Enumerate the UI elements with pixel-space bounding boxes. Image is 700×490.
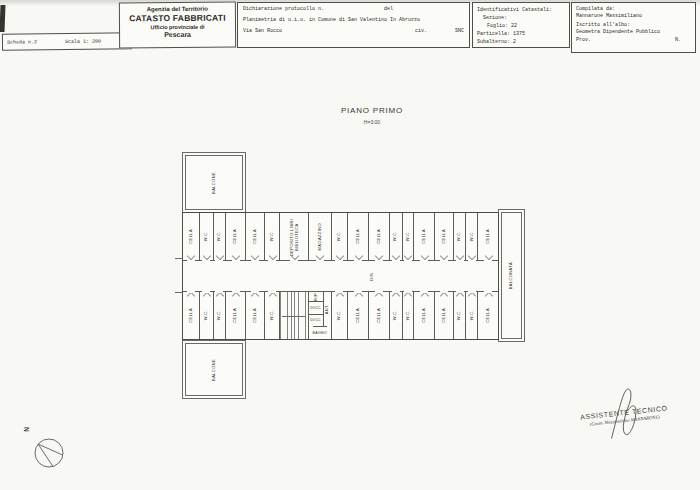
room-label: W.C. [270, 310, 275, 320]
room-cella: CELLA [368, 213, 389, 260]
cadastral-ids-title: Identificativi Catastali: [477, 6, 565, 14]
room-wc: W.C. [199, 213, 213, 260]
room-label: CELLA [486, 308, 491, 323]
register-value: Geometra Dipendente Pubblico [576, 29, 691, 36]
floor-title: PIANO PRIMO [322, 106, 422, 115]
room-wc: W.C. [402, 213, 414, 260]
foglio-field: Foglio: 22 [477, 22, 565, 30]
planimetria-line: Planimetria di u.i.u. in Comune di San V… [243, 18, 420, 23]
corridor-label: DIS. [370, 271, 375, 280]
room-deposito-libri: DEPOSITO LIBRI BIBLIOTECA [279, 213, 308, 260]
room-cella: CELLA [413, 292, 434, 339]
room-label: W.C. [470, 310, 475, 320]
room-wc: W.C. [331, 292, 348, 339]
room-label: W.C. [457, 231, 462, 241]
room-label: W.C. [270, 231, 275, 241]
room-label: DEPOSITO LIBRI BIBLIOTECA [290, 216, 299, 258]
room-label: CELLA [486, 229, 491, 244]
room-wc: W.C. [389, 292, 402, 339]
room-cella: CELLA [245, 292, 264, 339]
room-cella: CELLA [183, 292, 199, 339]
room-label: W.C. [204, 231, 209, 241]
room-label: W.C. [337, 310, 342, 320]
room-label-rip: RIP. [314, 292, 319, 301]
room-wc: W.C. [453, 213, 466, 260]
scan-corner-mark [0, 5, 5, 32]
balcony-bottom-left: BALCONE [182, 340, 246, 399]
cadastral-ids-box: Identificativi Catastali: Sezione: Fogli… [472, 2, 570, 48]
room-label: W.C. [393, 231, 398, 241]
subalterno-field: Subalterno: 2 [477, 38, 565, 46]
north-letter: N [23, 427, 30, 432]
protocol-label: Dichiarazione protocollo n. [243, 7, 324, 12]
room-label: BALCONE [212, 172, 217, 194]
civic-value: SNC [455, 29, 464, 34]
room-label: W.C. [217, 231, 222, 241]
office-label: Ufficio provinciale di [120, 24, 235, 31]
room-cella: CELLA [368, 292, 389, 339]
room-cella: CELLA [183, 213, 199, 260]
room-label: CELLA [442, 229, 447, 244]
scheda-number: Scheda n.2 [7, 39, 37, 45]
scanned-cadastral-sheet: Scheda n.2 Scala 1: 200 Agenzia del Terr… [0, 0, 700, 490]
room-label: BALCONE [212, 359, 217, 381]
room-cella: CELLA [477, 292, 498, 339]
room-cella: CELLA [347, 213, 368, 260]
catasto-title: CATASTO FABBRICATI [120, 13, 235, 24]
room-label: W.C. [470, 231, 475, 241]
room-label-docce: DOCC. [309, 301, 323, 313]
building-outline: CELLA W.C. W.C. CELLA CELLA W.C. DEPOSIT… [182, 212, 499, 340]
room-wc: W.C. [264, 213, 280, 260]
room-cella: CELLA [225, 213, 245, 260]
scheda-box: Scheda n.2 Scala 1: 200 [2, 32, 132, 50]
declaration-box: Dichiarazione protocollo n. del Planimet… [237, 2, 470, 48]
room-label: MAGAZZINO [318, 223, 323, 250]
room-label-bagno: BAGNO [313, 326, 327, 339]
room-label: CELLA [233, 229, 238, 244]
civic-label: civ. [415, 29, 427, 34]
staircase [279, 292, 308, 339]
room-wc: W.C. [465, 292, 477, 339]
corridor: DIS. [183, 261, 498, 291]
room-label: CELLA [442, 308, 447, 323]
agency-name: Agenzia del Territorio [120, 6, 235, 13]
room-cella: CELLA [434, 292, 453, 339]
compiler-box: Compilata da: Mannarone Massimiliano Isc… [571, 2, 696, 53]
room-wc: W.C. [213, 213, 226, 260]
lower-room-band: CELLA W.C. W.C. CELLA CELLA W.C. RIP. DO… [183, 291, 498, 339]
room-wc: W.C. [465, 213, 477, 260]
room-label-ant: ANT. [325, 304, 330, 314]
prov-label: Prov. [576, 37, 591, 44]
north-compass-icon: N [22, 424, 68, 472]
room-wc: W.C. [264, 292, 280, 339]
room-label: CELLA [233, 308, 238, 323]
room-wc: W.C. [331, 213, 348, 260]
room-label: CELLA [356, 229, 361, 244]
room-label: W.C. [337, 231, 342, 241]
room-cella: CELLA [245, 213, 264, 260]
room-cella: CELLA [477, 213, 498, 260]
room-label: CELLA [422, 308, 427, 323]
services-block: RIP. DOCC. DOCC. ANT. BAGNO [308, 292, 331, 339]
room-label: CELLA [189, 308, 194, 323]
particella-field: Particella: 1375 [477, 30, 565, 38]
room-label: CELLA [253, 308, 258, 323]
room-label: CELLA [377, 308, 382, 323]
room-label: W.C. [217, 310, 222, 320]
agency-logo-box: Agenzia del Territorio CATASTO FABBRICAT… [119, 2, 236, 49]
corridor-tick-left-bottom [175, 292, 182, 293]
room-cella: CELLA [434, 213, 453, 260]
sezione-field: Sezione: [477, 14, 565, 22]
signature-scribble-icon [594, 385, 651, 444]
floor-plan: BALCONE BALCONE BALCONATA CELLA W.C. W.C… [182, 152, 528, 400]
room-wc: W.C. [453, 292, 466, 339]
room-label: BALCONATA [509, 262, 514, 289]
plan-title-block: PIANO PRIMO H=3.00 [322, 106, 422, 125]
room-wc: W.C. [402, 292, 414, 339]
scale-label: Scala 1: 200 [65, 38, 101, 44]
room-label-docce: DOCC. [309, 314, 323, 326]
room-magazzino: MAGAZZINO [308, 213, 331, 260]
room-wc: W.C. [213, 292, 226, 339]
room-label: CELLA [356, 308, 361, 323]
room-label: CELLA [377, 229, 382, 244]
room-cella: CELLA [413, 213, 434, 260]
office-city: Pescara [120, 31, 235, 39]
street-name: Via San Rocco [243, 29, 282, 34]
room-label: CELLA [189, 229, 194, 244]
room-label: W.C. [406, 310, 411, 320]
room-label: W.C. [406, 231, 411, 241]
corridor-tick-left-top [175, 258, 182, 259]
room-cella: CELLA [225, 292, 245, 339]
room-wc: W.C. [389, 213, 402, 260]
floor-height: H=3.00 [322, 119, 422, 125]
upper-room-band: CELLA W.C. W.C. CELLA CELLA W.C. DEPOSIT… [183, 213, 498, 261]
room-label: W.C. [393, 310, 398, 320]
balcony-right: BALCONATA [498, 209, 525, 342]
technician-signature-block: ASSISTENTE TECNICO (Geom. Massimiliano M… [550, 390, 700, 457]
room-label: CELLA [253, 229, 258, 244]
compass-circle [33, 437, 65, 469]
room-label: W.C. [457, 310, 462, 320]
room-cella: CELLA [347, 292, 368, 339]
room-label: CELLA [422, 229, 427, 244]
number-label: N. [675, 37, 681, 44]
room-wc: W.C. [199, 292, 213, 339]
room-label: W.C. [204, 310, 209, 320]
protocol-date-label: del [384, 7, 393, 12]
balcony-top-left: BALCONE [182, 152, 246, 213]
